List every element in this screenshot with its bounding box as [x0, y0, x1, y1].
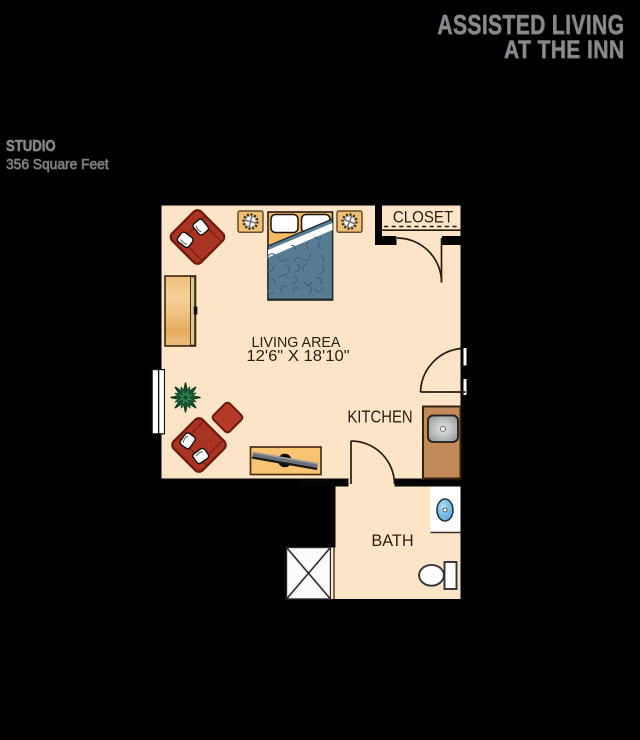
- svg-text:KITCHEN: KITCHEN: [347, 407, 412, 426]
- svg-text:12'6" X 18'10": 12'6" X 18'10": [246, 347, 349, 365]
- svg-text:CLOSET: CLOSET: [393, 209, 454, 227]
- svg-text:BATH: BATH: [371, 532, 413, 550]
